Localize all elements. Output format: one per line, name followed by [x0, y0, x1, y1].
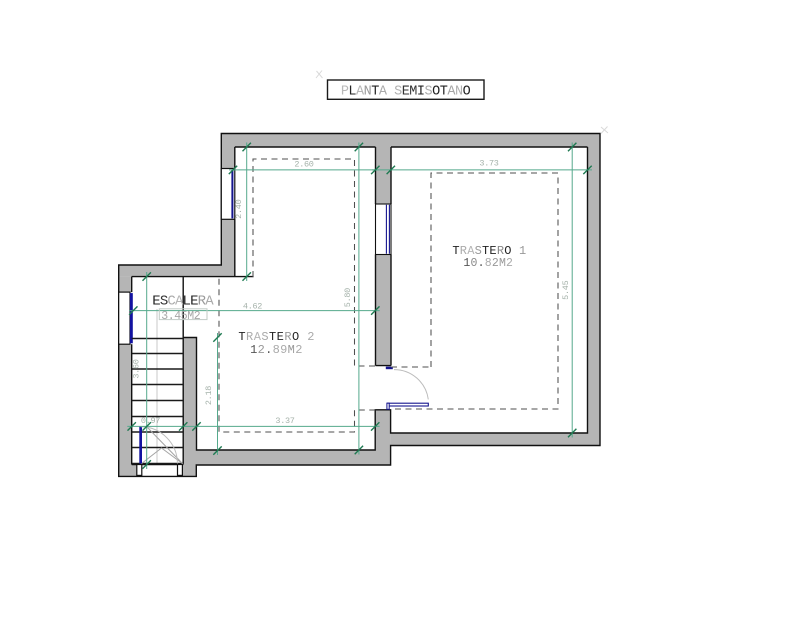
- svg-text:0.97: 0.97: [141, 416, 160, 426]
- svg-text:3.60: 3.60: [132, 359, 142, 378]
- svg-text:10.82M2: 10.82M2: [463, 257, 513, 270]
- svg-text:2.40: 2.40: [234, 199, 244, 218]
- svg-text:2.18: 2.18: [204, 386, 214, 405]
- svg-text:4.62: 4.62: [243, 301, 262, 311]
- svg-text:TRASTERO 1: TRASTERO 1: [452, 244, 526, 258]
- svg-text:TRASTERO 2: TRASTERO 2: [238, 330, 315, 344]
- svg-text:3.45M2: 3.45M2: [161, 310, 201, 323]
- svg-text:3.73: 3.73: [479, 159, 498, 169]
- svg-text:12.89M2: 12.89M2: [250, 343, 303, 357]
- svg-text:ESCALERA: ESCALERA: [152, 294, 214, 310]
- svg-text:PLANTA SEMISOTANO: PLANTA SEMISOTANO: [341, 85, 471, 100]
- svg-text:2.60: 2.60: [294, 160, 313, 170]
- svg-text:5.80: 5.80: [343, 288, 353, 307]
- svg-text:5.45: 5.45: [561, 280, 571, 299]
- svg-text:3.37: 3.37: [275, 416, 294, 426]
